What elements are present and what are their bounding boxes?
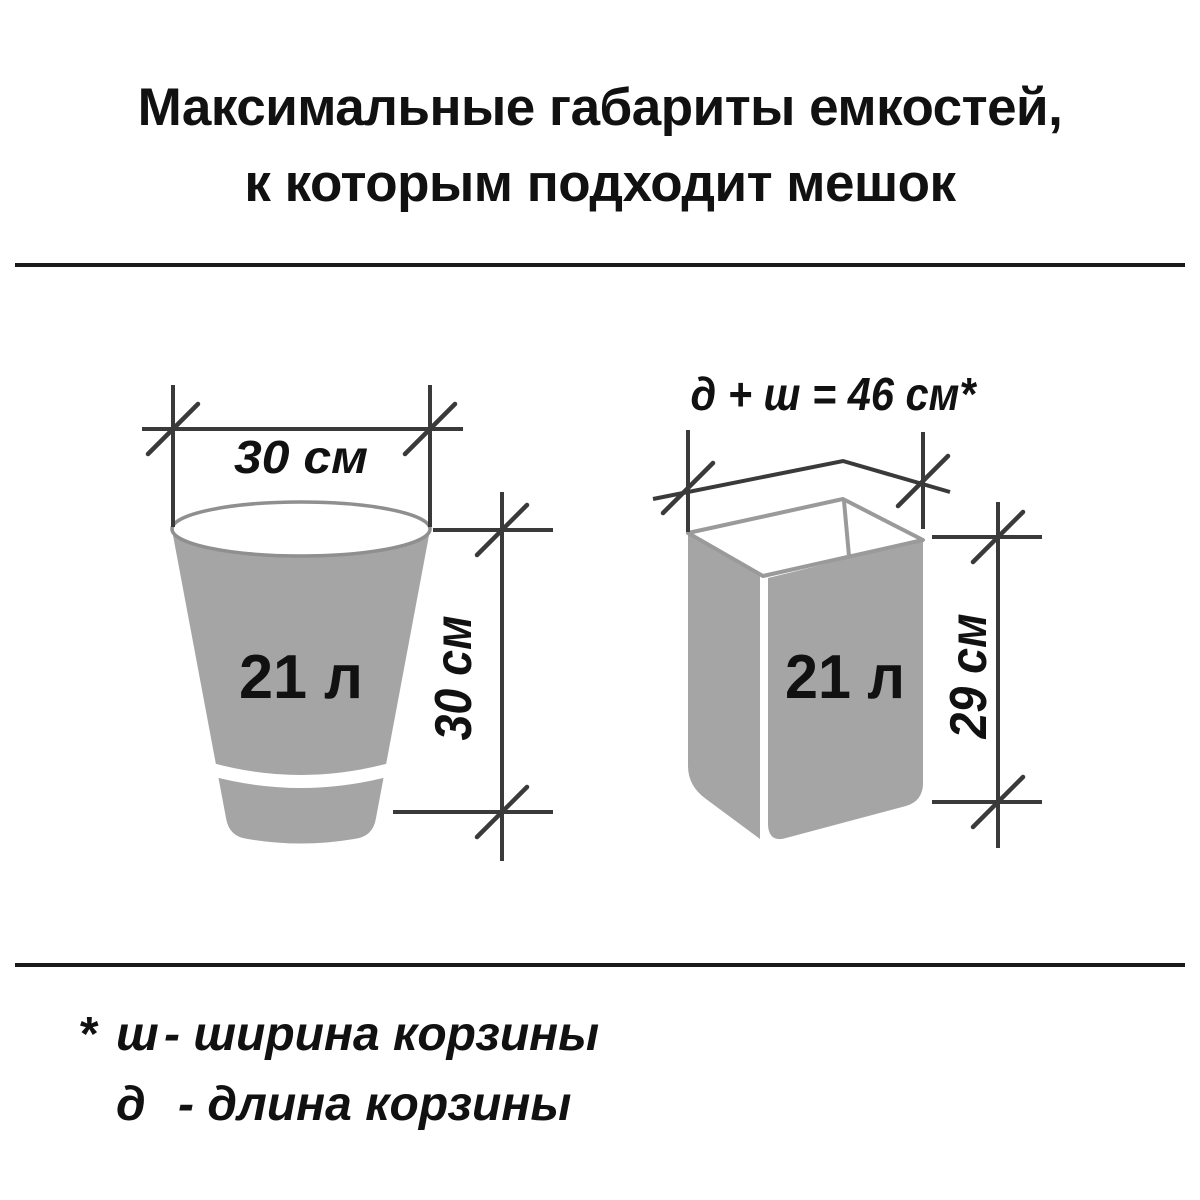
basket-volume-label: 21 л [785,643,905,712]
bucket-rim [172,502,430,556]
basket-figure: 21 л д + ш = 46 см* 29 см [653,368,1042,848]
footnote-line-length: д - длина корзины [78,1070,599,1140]
footnote-symbol-length: д [116,1070,164,1140]
basket-dimension-formula-label: д + ш = 46 см* [691,368,978,420]
bucket-figure: 21 л 30 см 30 см [142,385,553,861]
basket-height-label: 29 см [940,614,998,740]
bucket-volume-label: 21 л [239,643,363,712]
footnote-text-length: - длина корзины [178,1070,571,1140]
basket-left-face [688,533,760,839]
infographic-canvas: Максимальные габариты емкостей, к которы… [0,0,1200,1200]
footnote-symbol-width: ш [116,1000,164,1070]
bucket-height-label: 30 см [425,616,483,741]
footnote-text-width: - ширина корзины [164,1000,599,1070]
footnote-line-width: * ш - ширина корзины [78,1000,599,1070]
bucket-width-label: 30 см [234,431,368,483]
footnote-legend: * ш - ширина корзины д - длина корзины [78,1000,599,1140]
footnote-asterisk: * [78,1000,116,1070]
